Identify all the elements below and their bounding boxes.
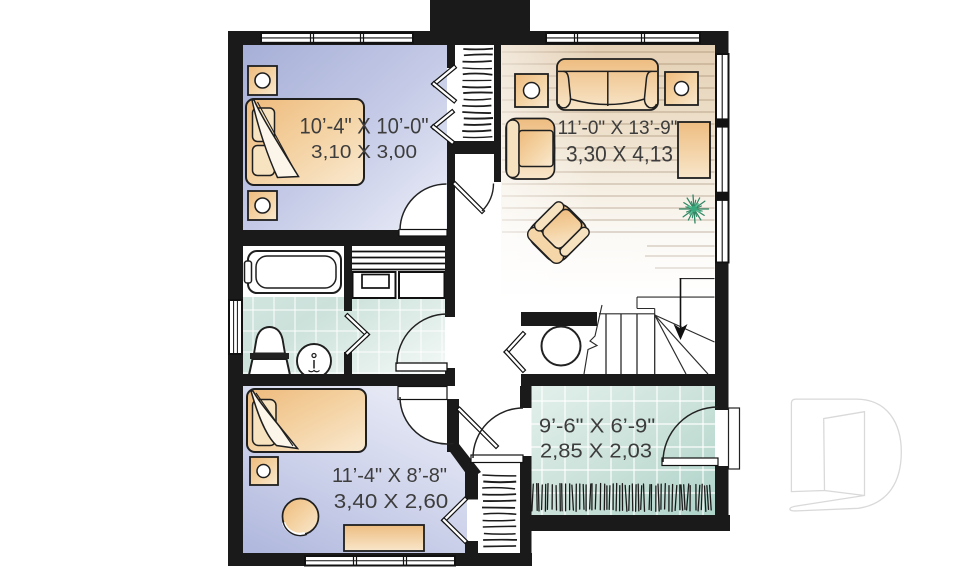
svg-text:10’-4" X 10’-0": 10’-4" X 10’-0" [299, 115, 428, 139]
svg-text:3,30 X 4,13: 3,30 X 4,13 [566, 141, 673, 167]
svg-text:11’-0" X 13’-9": 11’-0" X 13’-9" [558, 118, 678, 139]
svg-text:3,10 X 3,00: 3,10 X 3,00 [311, 142, 417, 163]
svg-text:3,40 X 2,60: 3,40 X 2,60 [334, 491, 449, 513]
svg-text:2,85 X 2,03: 2,85 X 2,03 [540, 440, 652, 462]
svg-text:11’-4" X 8’-8": 11’-4" X 8’-8" [332, 465, 447, 487]
svg-text:9’-6" X 6’-9": 9’-6" X 6’-9" [539, 415, 655, 437]
